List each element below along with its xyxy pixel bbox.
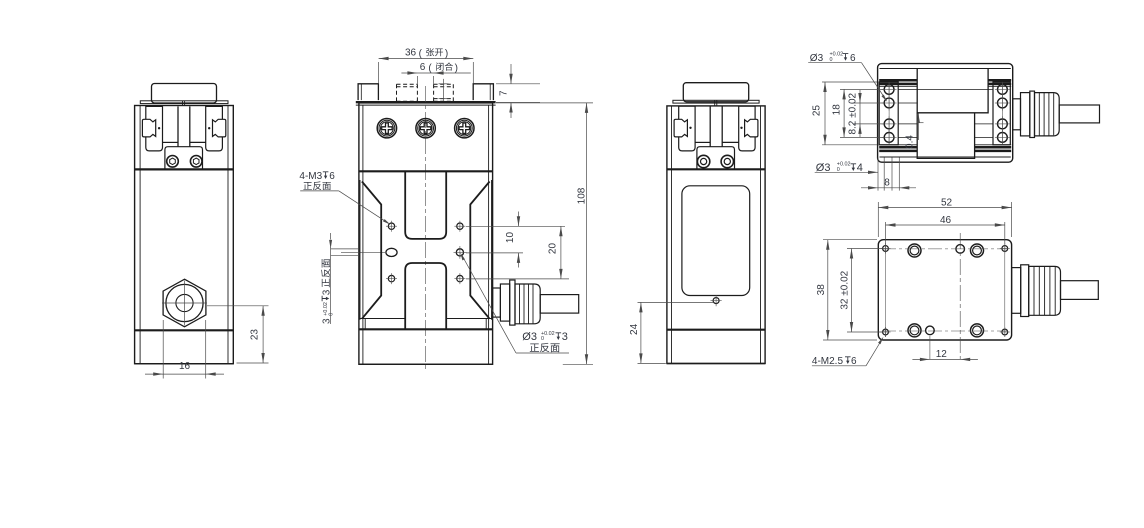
- svg-text:0: 0: [541, 336, 544, 342]
- svg-text:18: 18: [831, 104, 842, 116]
- svg-text:6: 6: [329, 171, 335, 182]
- svg-text:38: 38: [816, 284, 827, 296]
- svg-text:): ): [445, 49, 448, 60]
- svg-text:16: 16: [179, 361, 191, 372]
- svg-text:8.2 ±0.02: 8.2 ±0.02: [848, 92, 859, 134]
- svg-text:52: 52: [941, 198, 953, 209]
- svg-text:12: 12: [936, 349, 948, 360]
- svg-text:24: 24: [629, 323, 640, 335]
- svg-text:6: 6: [420, 62, 426, 73]
- svg-text:23: 23: [250, 329, 261, 341]
- svg-text:0.4: 0.4: [905, 135, 916, 149]
- svg-text:46: 46: [940, 215, 952, 226]
- svg-text:0: 0: [329, 313, 335, 316]
- svg-text:20: 20: [548, 243, 559, 255]
- svg-text:): ): [455, 63, 458, 74]
- svg-text:36: 36: [405, 48, 417, 59]
- svg-text:Ø3: Ø3: [522, 331, 537, 343]
- svg-text:8: 8: [884, 178, 890, 189]
- svg-text:10: 10: [505, 232, 516, 244]
- svg-text:4-M2.5: 4-M2.5: [812, 356, 844, 367]
- svg-text:108: 108: [577, 187, 588, 204]
- svg-text:32 ±0.02: 32 ±0.02: [840, 270, 851, 309]
- svg-text:6: 6: [851, 356, 857, 367]
- svg-text:6: 6: [850, 53, 856, 64]
- svg-text:25: 25: [812, 105, 823, 117]
- svg-text:3: 3: [562, 331, 568, 343]
- svg-text:Ø3: Ø3: [810, 53, 824, 64]
- svg-text:4-M3: 4-M3: [299, 171, 322, 182]
- svg-text:0: 0: [830, 57, 833, 63]
- svg-text:7: 7: [499, 90, 510, 96]
